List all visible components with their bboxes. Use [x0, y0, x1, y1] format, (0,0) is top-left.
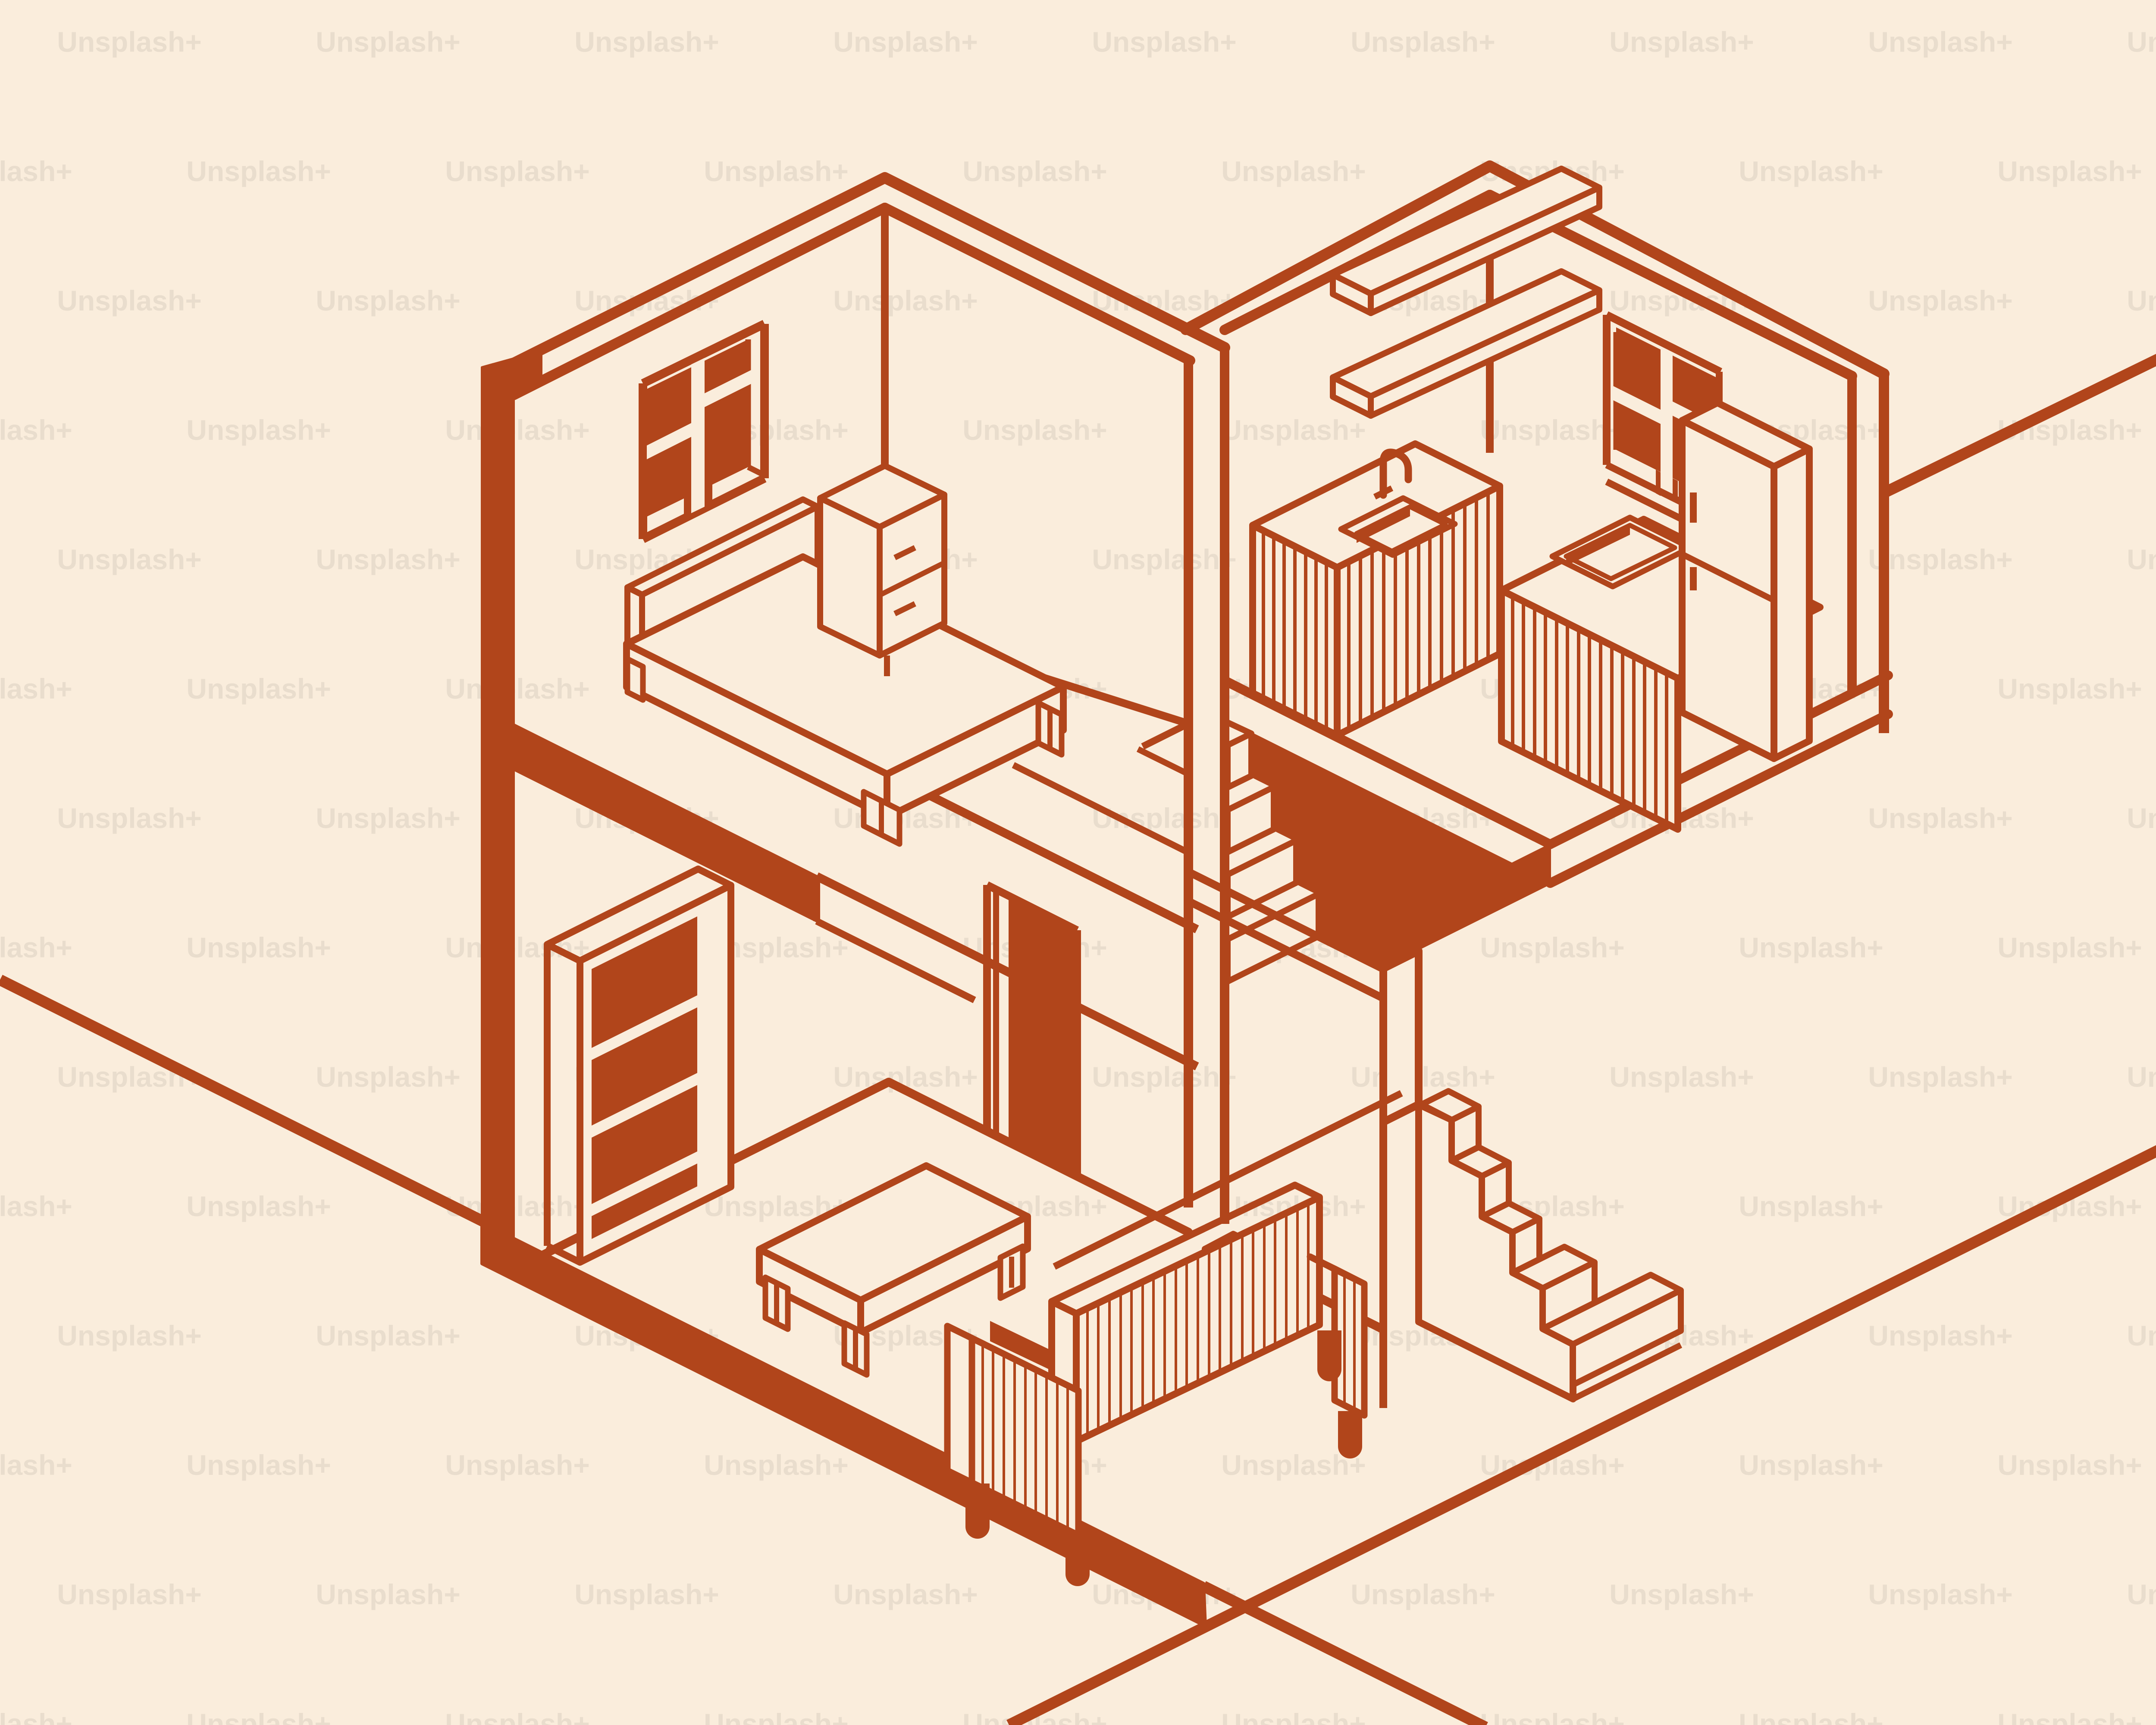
svg-text:Unsplash+: Unsplash+ — [445, 673, 590, 705]
svg-text:Unsplash+: Unsplash+ — [0, 673, 72, 705]
svg-text:Unsplash+: Unsplash+ — [704, 1708, 849, 1725]
svg-text:Unsplash+: Unsplash+ — [0, 1449, 72, 1481]
svg-text:Unsplash+: Unsplash+ — [0, 931, 72, 963]
svg-text:Unsplash+: Unsplash+ — [316, 1061, 461, 1093]
svg-text:Unsplash+: Unsplash+ — [1739, 155, 1883, 187]
svg-text:Unsplash+: Unsplash+ — [833, 26, 978, 58]
svg-text:Unsplash+: Unsplash+ — [574, 26, 719, 58]
svg-text:Unsplash+: Unsplash+ — [316, 285, 461, 317]
svg-text:Unsplash+: Unsplash+ — [1351, 1061, 1495, 1093]
svg-text:Unsplash+: Unsplash+ — [57, 802, 202, 834]
svg-text:Unsplash+: Unsplash+ — [574, 1578, 719, 1610]
svg-text:Unsplash+: Unsplash+ — [2127, 543, 2156, 575]
svg-text:Unsplash+: Unsplash+ — [2127, 1578, 2156, 1610]
svg-text:Unsplash+: Unsplash+ — [316, 26, 461, 58]
svg-text:Unsplash+: Unsplash+ — [1868, 543, 2013, 575]
svg-text:Unsplash+: Unsplash+ — [57, 1578, 202, 1610]
svg-text:Unsplash+: Unsplash+ — [1997, 1708, 2142, 1725]
svg-text:Unsplash+: Unsplash+ — [1351, 1578, 1495, 1610]
svg-text:Unsplash+: Unsplash+ — [186, 414, 331, 446]
svg-text:Unsplash+: Unsplash+ — [1868, 1578, 2013, 1610]
svg-text:Unsplash+: Unsplash+ — [1480, 931, 1625, 963]
svg-text:Unsplash+: Unsplash+ — [316, 802, 461, 834]
svg-text:Unsplash+: Unsplash+ — [962, 414, 1107, 446]
svg-text:Unsplash+: Unsplash+ — [186, 1449, 331, 1481]
svg-text:Unsplash+: Unsplash+ — [1609, 26, 1754, 58]
svg-text:Unsplash+: Unsplash+ — [1221, 155, 1366, 187]
svg-text:Unsplash+: Unsplash+ — [1739, 1449, 1883, 1481]
svg-text:Unsplash+: Unsplash+ — [1868, 26, 2013, 58]
svg-text:Unsplash+: Unsplash+ — [833, 1578, 978, 1610]
svg-text:Unsplash+: Unsplash+ — [704, 155, 849, 187]
svg-text:Unsplash+: Unsplash+ — [962, 155, 1107, 187]
svg-text:Unsplash+: Unsplash+ — [0, 1708, 72, 1725]
svg-text:Unsplash+: Unsplash+ — [2127, 1061, 2156, 1093]
svg-text:Unsplash+: Unsplash+ — [1868, 1320, 2013, 1352]
svg-text:Unsplash+: Unsplash+ — [1997, 155, 2142, 187]
svg-text:Unsplash+: Unsplash+ — [1739, 931, 1883, 963]
svg-text:Unsplash+: Unsplash+ — [2127, 285, 2156, 317]
svg-text:Unsplash+: Unsplash+ — [1351, 26, 1495, 58]
svg-text:Unsplash+: Unsplash+ — [186, 673, 331, 705]
svg-text:Unsplash+: Unsplash+ — [0, 1190, 72, 1222]
svg-text:Unsplash+: Unsplash+ — [57, 543, 202, 575]
svg-text:Unsplash+: Unsplash+ — [316, 1578, 461, 1610]
svg-text:Unsplash+: Unsplash+ — [1868, 285, 2013, 317]
svg-text:Unsplash+: Unsplash+ — [1997, 931, 2142, 963]
svg-text:Unsplash+: Unsplash+ — [316, 1320, 461, 1352]
svg-text:Unsplash+: Unsplash+ — [1739, 1708, 1883, 1725]
svg-text:Unsplash+: Unsplash+ — [0, 155, 72, 187]
svg-text:Unsplash+: Unsplash+ — [57, 285, 202, 317]
svg-text:Unsplash+: Unsplash+ — [1092, 26, 1237, 58]
svg-text:Unsplash+: Unsplash+ — [1609, 1578, 1754, 1610]
svg-text:Unsplash+: Unsplash+ — [2127, 1320, 2156, 1352]
svg-text:Unsplash+: Unsplash+ — [316, 543, 461, 575]
svg-text:Unsplash+: Unsplash+ — [186, 155, 331, 187]
svg-text:Unsplash+: Unsplash+ — [1221, 414, 1366, 446]
svg-text:Unsplash+: Unsplash+ — [186, 1708, 331, 1725]
svg-text:Unsplash+: Unsplash+ — [2127, 802, 2156, 834]
svg-text:Unsplash+: Unsplash+ — [57, 1320, 202, 1352]
svg-text:Unsplash+: Unsplash+ — [1868, 1061, 2013, 1093]
svg-text:Unsplash+: Unsplash+ — [445, 414, 590, 446]
svg-text:Unsplash+: Unsplash+ — [1609, 1061, 1754, 1093]
svg-text:Unsplash+: Unsplash+ — [1739, 1190, 1883, 1222]
svg-text:Unsplash+: Unsplash+ — [445, 1449, 590, 1481]
svg-text:Unsplash+: Unsplash+ — [1868, 802, 2013, 834]
svg-text:Unsplash+: Unsplash+ — [833, 285, 978, 317]
svg-text:Unsplash+: Unsplash+ — [1221, 1708, 1366, 1725]
svg-text:Unsplash+: Unsplash+ — [445, 155, 590, 187]
svg-text:Unsplash+: Unsplash+ — [57, 26, 202, 58]
svg-text:Unsplash+: Unsplash+ — [1092, 543, 1237, 575]
svg-text:Unsplash+: Unsplash+ — [186, 1190, 331, 1222]
svg-text:Unsplash+: Unsplash+ — [445, 1708, 590, 1725]
svg-text:Unsplash+: Unsplash+ — [1997, 673, 2142, 705]
svg-text:Unsplash+: Unsplash+ — [1997, 1449, 2142, 1481]
svg-text:Unsplash+: Unsplash+ — [704, 1449, 849, 1481]
svg-text:Unsplash+: Unsplash+ — [1480, 1708, 1625, 1725]
svg-text:Unsplash+: Unsplash+ — [186, 931, 331, 963]
svg-text:Unsplash+: Unsplash+ — [1092, 1061, 1237, 1093]
svg-text:Unsplash+: Unsplash+ — [0, 414, 72, 446]
svg-text:Unsplash+: Unsplash+ — [2127, 26, 2156, 58]
